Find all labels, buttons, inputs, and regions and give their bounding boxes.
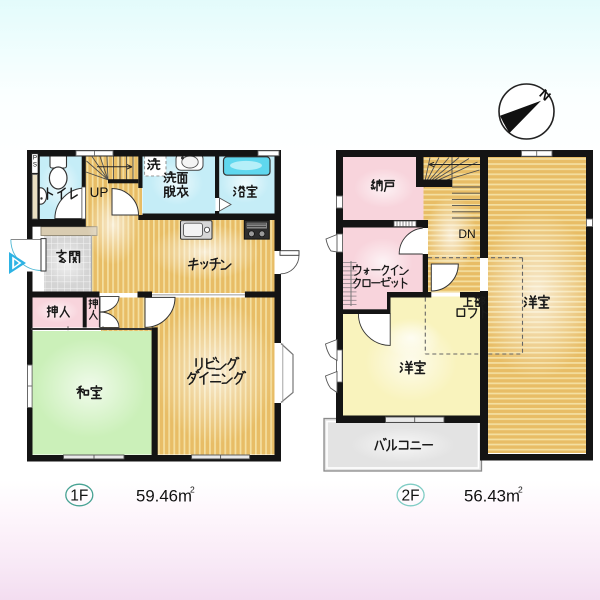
svg-text:56.43m: 56.43m — [464, 487, 520, 506]
svg-text:DN: DN — [458, 227, 475, 241]
svg-text:2: 2 — [518, 485, 523, 495]
svg-text:P: P — [33, 155, 37, 162]
svg-text:S: S — [33, 162, 37, 169]
svg-text:UP: UP — [90, 185, 109, 200]
svg-text:59.46m: 59.46m — [136, 487, 192, 506]
svg-text:2: 2 — [190, 485, 195, 495]
svg-text:1F: 1F — [70, 488, 88, 505]
svg-text:2F: 2F — [402, 488, 420, 505]
